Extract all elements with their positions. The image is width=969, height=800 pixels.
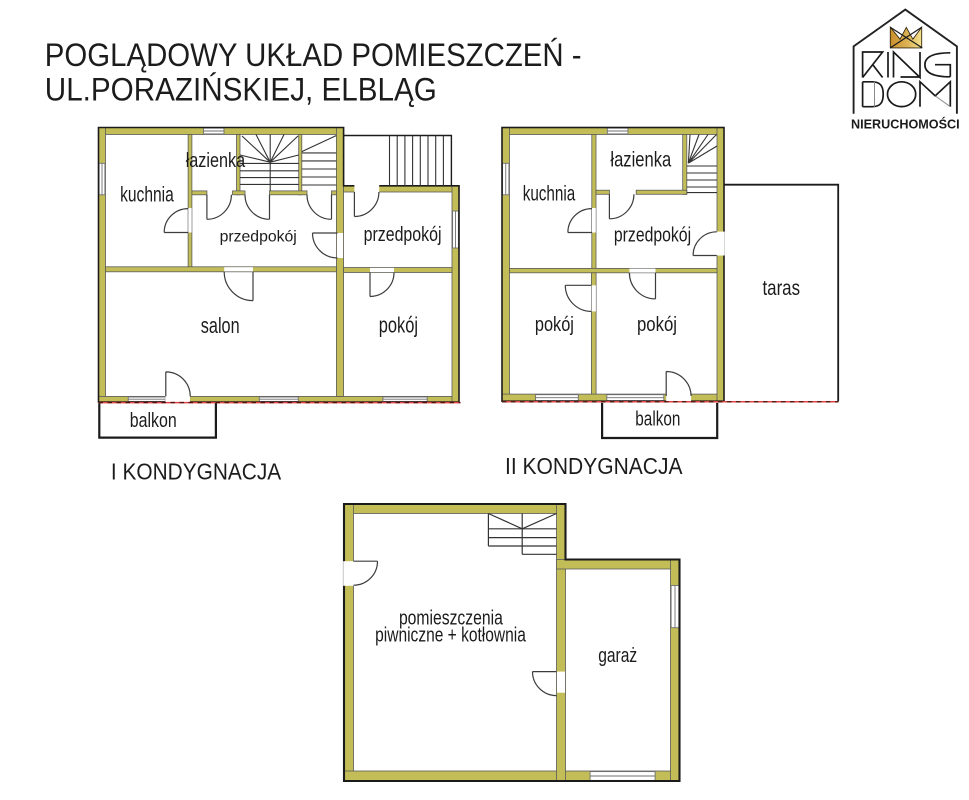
svg-text:przedpokój: przedpokój xyxy=(364,224,442,246)
svg-text:pokój: pokój xyxy=(379,313,418,338)
svg-text:POGLĄDOWY UKŁAD POMIESZCZEŃ -: POGLĄDOWY UKŁAD POMIESZCZEŃ - xyxy=(45,37,582,73)
svg-text:pokój: pokój xyxy=(535,314,574,336)
svg-text:łazienka: łazienka xyxy=(186,150,246,172)
svg-text:I KONDYGNACJA: I KONDYGNACJA xyxy=(111,459,282,485)
svg-text:przedpokój: przedpokój xyxy=(220,228,297,245)
svg-text:balkon: balkon xyxy=(130,410,177,432)
svg-text:łazienka: łazienka xyxy=(610,148,671,171)
svg-text:pokój: pokój xyxy=(637,314,677,336)
svg-text:kuchnia: kuchnia xyxy=(120,184,174,207)
svg-text:przedpokój: przedpokój xyxy=(614,224,691,246)
svg-text:UL.PORAZIŃSKIEJ, ELBLĄG: UL.PORAZIŃSKIEJ, ELBLĄG xyxy=(45,71,437,107)
svg-text:NIERUCHOMOŚCI: NIERUCHOMOŚCI xyxy=(851,117,960,132)
svg-text:piwniczne + kotłownia: piwniczne + kotłownia xyxy=(375,625,526,647)
svg-text:balkon: balkon xyxy=(635,409,680,431)
svg-text:II KONDYGNACJA: II KONDYGNACJA xyxy=(505,453,683,479)
svg-text:garaż: garaż xyxy=(598,645,637,667)
svg-text:kuchnia: kuchnia xyxy=(523,183,576,206)
svg-text:salon: salon xyxy=(201,313,240,338)
svg-text:taras: taras xyxy=(763,277,801,300)
